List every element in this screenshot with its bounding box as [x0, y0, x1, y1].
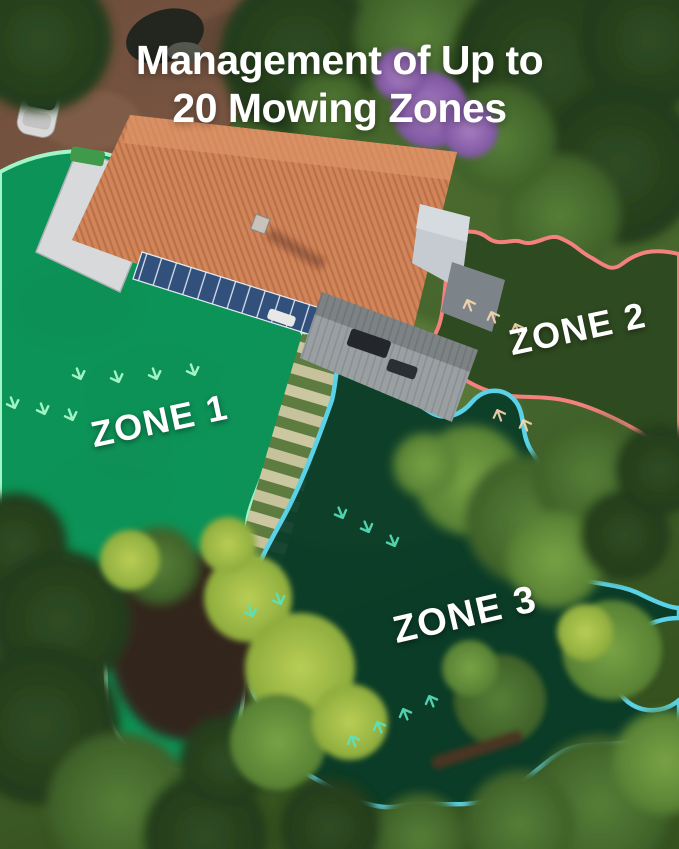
title: Management of Up to 20 Mowing Zones	[0, 36, 679, 133]
title-line-1: Management of Up to	[0, 36, 679, 84]
mowing-zones-infographic: Management of Up to 20 Mowing Zones ZONE…	[0, 0, 679, 849]
title-line-2: 20 Mowing Zones	[0, 84, 679, 132]
